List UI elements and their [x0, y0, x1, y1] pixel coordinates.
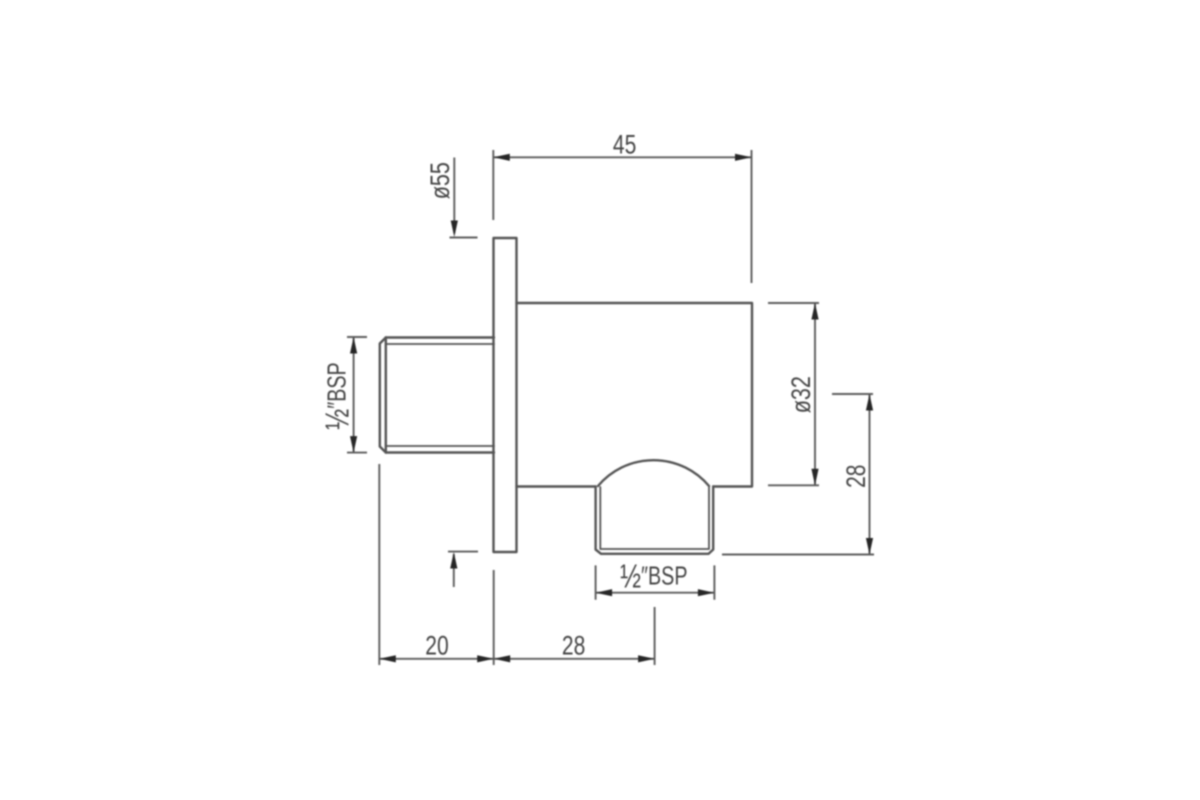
svg-text:½″BSP: ½″BSP — [620, 558, 687, 595]
svg-text:ø32: ø32 — [787, 376, 817, 413]
svg-text:ø55: ø55 — [426, 162, 456, 199]
svg-text:28: 28 — [842, 464, 872, 487]
svg-text:28: 28 — [562, 631, 585, 661]
svg-text:20: 20 — [425, 631, 448, 661]
svg-text:½″BSP: ½″BSP — [319, 362, 356, 429]
svg-text:45: 45 — [613, 130, 636, 160]
